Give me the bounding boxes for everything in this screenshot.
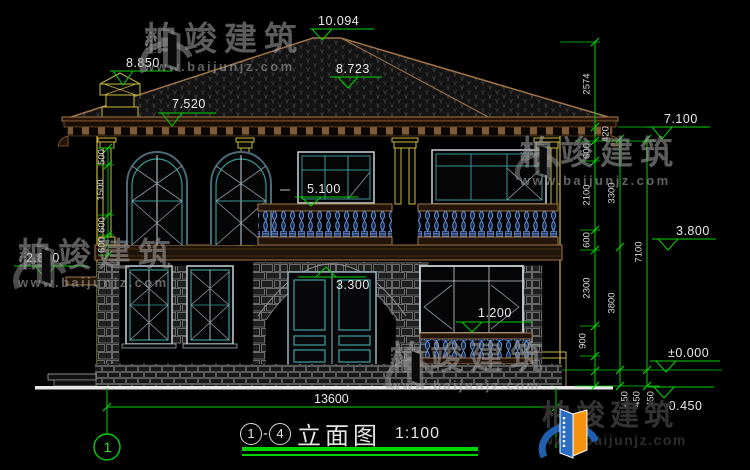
dim-offset-450b: 450	[632, 391, 643, 407]
dim-eave-drop: 420	[601, 126, 612, 142]
elevation-chimney: 8.850	[126, 56, 160, 70]
title-axis-to: 4	[269, 423, 291, 445]
porch-balustrade	[420, 333, 532, 364]
elevation-hip: 8.723	[336, 62, 370, 76]
title-underline-thin	[242, 454, 478, 456]
elevation-balcony-rail: 5.100	[307, 182, 341, 196]
dim-seg-900: 900	[578, 333, 589, 349]
dim-seg-600a: 600	[582, 143, 593, 159]
elevation-window-sill: 1.200	[478, 306, 512, 320]
elevation-door-arch: 3.300	[336, 278, 370, 292]
dim-overall-width: 13600	[314, 392, 349, 406]
elevation-left-cornice: 2.800	[26, 251, 60, 265]
dim-left-600b: 600	[97, 237, 108, 253]
dim-seg-600b: 600	[582, 232, 593, 248]
dim-seg-2100: 2100	[582, 184, 593, 205]
arched-window	[127, 152, 187, 245]
dim-left-1500: 1500	[96, 179, 107, 200]
dim-seg-2300: 2300	[582, 277, 593, 298]
elevation-right-eave: 7.100	[664, 112, 698, 126]
dim-storey-1f: 3800	[607, 292, 618, 313]
dim-offset-450a: 450	[620, 391, 631, 407]
dim-left-600a: 600	[97, 217, 108, 233]
dim-left-500: 500	[97, 149, 108, 165]
title-scale: 1:100	[395, 425, 440, 443]
dim-total-height: 7100	[634, 241, 645, 262]
elevation-ridge: 10.094	[318, 14, 359, 28]
elevation-eave: 7.520	[172, 97, 206, 111]
axis-bubble-1: 1	[100, 439, 115, 455]
balcony-balustrade	[258, 204, 558, 245]
title-separator: -	[263, 425, 268, 442]
cad-elevation-drawing: 10.094 8.850 8.723 7.520 5.100 2.800 3.3…	[0, 0, 750, 470]
dim-storey-2f: 3300	[607, 182, 618, 203]
window-1f-right	[420, 266, 523, 333]
window-1f-left	[122, 266, 176, 348]
chimney	[100, 73, 140, 119]
dim-offset-450c: 450	[646, 391, 657, 407]
drawing-title: 1 - 4 立面图 1:100	[240, 416, 440, 451]
elevation-second-floor: 3.800	[676, 224, 710, 238]
title-name: 立面图	[297, 416, 381, 451]
elevation-site: -0.450	[664, 399, 702, 413]
dim-roof-rise: 2574	[582, 73, 593, 94]
ground-line	[35, 386, 613, 390]
elevation-ground: ±0.000	[668, 346, 709, 360]
title-underline-thick	[242, 447, 478, 451]
window-2f-right	[432, 150, 546, 204]
title-axis-from: 1	[240, 423, 262, 445]
base-plinth	[48, 364, 562, 386]
